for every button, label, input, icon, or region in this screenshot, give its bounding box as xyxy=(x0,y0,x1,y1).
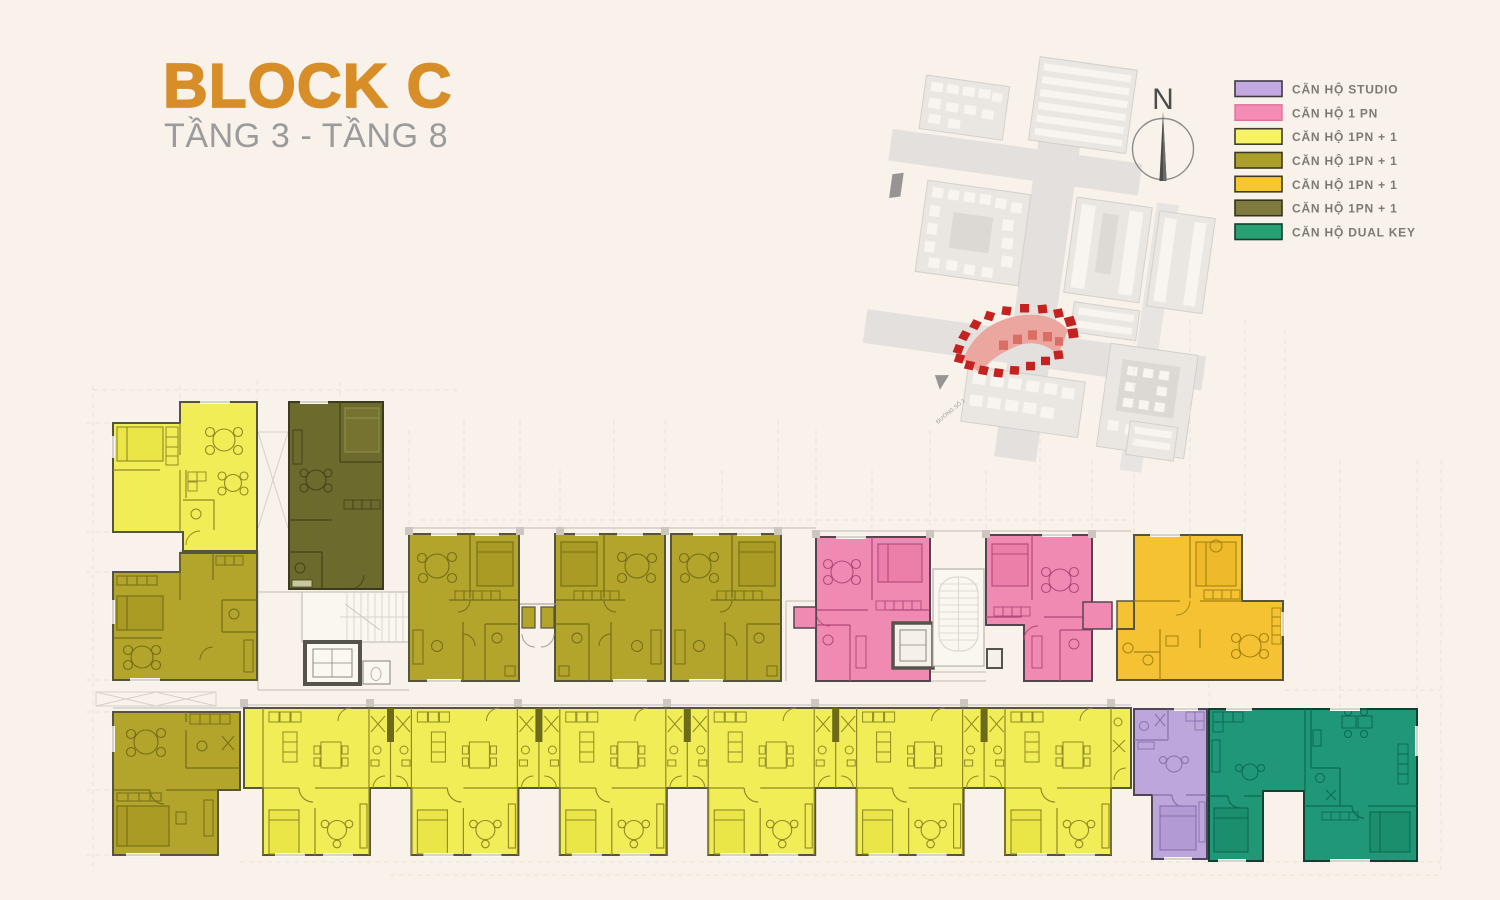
svg-text:CĂN HỘ 1 PN: CĂN HỘ 1 PN xyxy=(1292,105,1378,120)
svg-text:N: N xyxy=(1152,83,1174,116)
svg-text:TẦNG 3 - TẦNG 8: TẦNG 3 - TẦNG 8 xyxy=(164,117,448,155)
svg-text:CĂN HỘ STUDIO: CĂN HỘ STUDIO xyxy=(1292,82,1398,97)
svg-text:CĂN HỘ DUAL KEY: CĂN HỘ DUAL KEY xyxy=(1292,225,1416,240)
svg-text:CĂN HỘ 1PN + 1: CĂN HỘ 1PN + 1 xyxy=(1292,201,1398,216)
svg-text:CĂN HỘ 1PN + 1: CĂN HỘ 1PN + 1 xyxy=(1292,153,1398,168)
svg-text:CĂN HỘ 1PN + 1: CĂN HỘ 1PN + 1 xyxy=(1292,129,1398,144)
svg-text:BLOCK C: BLOCK C xyxy=(163,52,452,121)
svg-text:CĂN HỘ 1PN + 1: CĂN HỘ 1PN + 1 xyxy=(1292,177,1398,192)
